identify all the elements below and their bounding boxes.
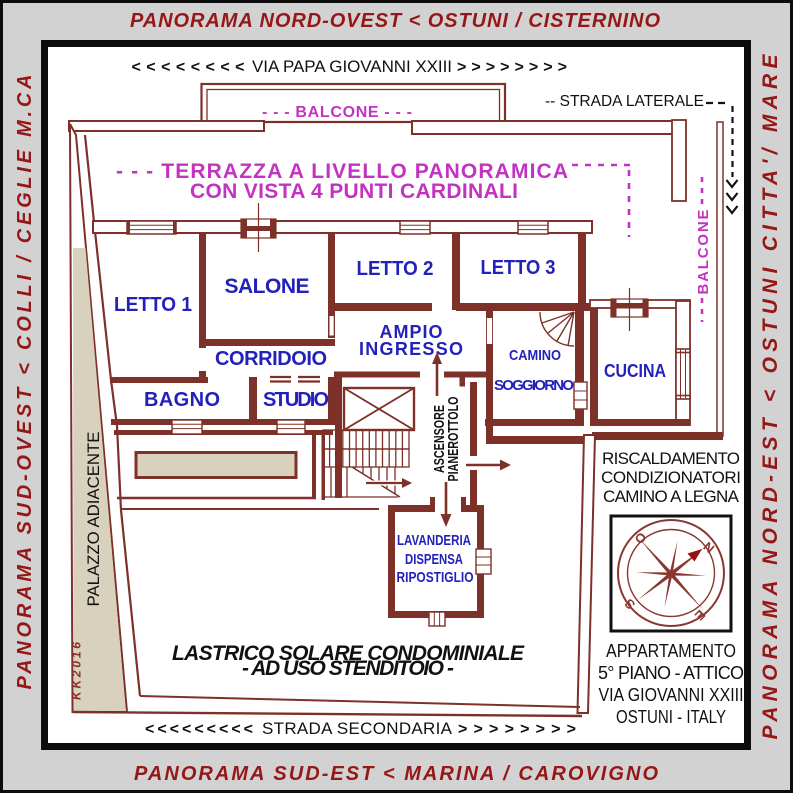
svg-text:< < < < < < < <: < < < < < < < <: [132, 59, 245, 76]
svg-text:SOGGIORNO: SOGGIORNO: [494, 377, 574, 394]
svg-text:PANORAMA SUD-EST < MARINA: PANORAMA SUD-EST < MARINA / CAROVIGNO: [134, 763, 658, 785]
svg-text:OSTUNI - ITALY: OSTUNI - ITALY: [616, 707, 726, 727]
svg-text:RIPOSTIGLIO: RIPOSTIGLIO: [397, 569, 474, 586]
svg-text:BALCONE: BALCONE: [695, 210, 712, 295]
svg-text:LETTO 2: LETTO 2: [357, 258, 434, 280]
svg-text:STRADA SECONDARIA: STRADA SECONDARIA: [262, 719, 453, 738]
svg-text:PANORAMA NORD-OVEST < OSTUN: PANORAMA NORD-OVEST < OSTUNI / CISTERNIN…: [130, 10, 660, 32]
svg-text:DISPENSA: DISPENSA: [405, 551, 463, 568]
svg-text:CORRIDOIO: CORRIDOIO: [215, 348, 327, 370]
svg-text:- - - BALCONE - - -: - - - BALCONE - - -: [262, 104, 412, 121]
svg-text:LAVANDERIA: LAVANDERIA: [397, 532, 471, 549]
svg-text:> > > > > > > >: > > > > > > > >: [458, 721, 576, 738]
svg-text:LETTO 1: LETTO 1: [114, 294, 192, 316]
svg-text:RISCALDAMENTO: RISCALDAMENTO: [602, 449, 740, 468]
svg-text:CON VISTA 4 PUNTI CARDINALI: CON VISTA 4 PUNTI CARDINALI: [190, 180, 518, 203]
svg-text:APPARTAMENTO: APPARTAMENTO: [606, 641, 736, 661]
svg-text:5° PIANO - ATTICO: 5° PIANO - ATTICO: [598, 663, 744, 683]
svg-text:LETTO 3: LETTO 3: [481, 257, 556, 279]
svg-text:CUCINA: CUCINA: [604, 361, 666, 381]
svg-text:> > > > > > > >: > > > > > > > >: [457, 59, 567, 76]
svg-text:STUDIO: STUDIO: [263, 389, 329, 411]
svg-text:BAGNO: BAGNO: [144, 389, 220, 411]
svg-text:PIANEROTTOLO: PIANEROTTOLO: [445, 396, 462, 481]
svg-text:-- STRADA LATERALE: -- STRADA LATERALE: [545, 93, 704, 110]
svg-text:CONDIZIONATORI: CONDIZIONATORI: [601, 468, 741, 487]
svg-text:CAMINO A LEGNA: CAMINO A LEGNA: [603, 487, 740, 506]
svg-text:VIA GIOVANNI XXIII: VIA GIOVANNI XXIII: [599, 685, 744, 705]
svg-text:< < < < < < < < <: < < < < < < < < <: [145, 721, 253, 738]
svg-text:SALONE: SALONE: [225, 275, 310, 298]
svg-text:VIA PAPA GIOVANNI XXIII: VIA PAPA GIOVANNI XXIII: [252, 57, 452, 76]
svg-text:- AD USO STENDITOIO -: - AD USO STENDITOIO -: [242, 657, 454, 680]
svg-text:CAMINO: CAMINO: [509, 347, 561, 364]
svg-text:PALAZZO ADIACENTE: PALAZZO ADIACENTE: [84, 432, 103, 607]
svg-text:INGRESSO: INGRESSO: [359, 339, 463, 359]
